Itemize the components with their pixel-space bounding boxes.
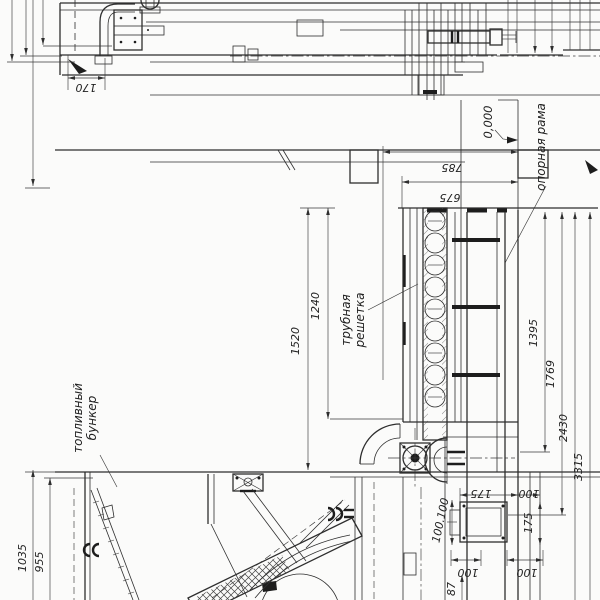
dim-text-2430: 2430 [557,414,570,442]
dim-text-1769: 1769 [544,360,557,388]
dim-text-175a: 175 [471,487,492,500]
dim-text-1395: 1395 [527,319,540,347]
dim-text-1240: 1240 [309,292,322,320]
svg-text:785: 785 [442,161,463,174]
svg-text:трубная: трубная [339,294,353,346]
dim-text-100a: 100 [519,487,540,500]
svg-text:опорная рама: опорная рама [534,103,548,191]
svg-text:топливный: топливный [71,383,85,453]
dim-text-3315: 3315 [572,453,585,481]
technical-drawing: 170 0,000 опорная рама 785 675 [0,0,600,600]
dim-text-1035: 1035 [16,544,29,572]
datum-text: 0,000 [481,106,495,139]
dim-text-87: 87 [445,582,458,596]
dim-text-100b: 100 [458,566,479,579]
dim-text-100c: 100 [517,566,538,579]
dim-text-1520: 1520 [289,327,302,355]
svg-text:бункер: бункер [85,395,99,440]
svg-text:решетка: решетка [353,293,367,349]
svg-text:675: 675 [440,191,461,204]
dim-text-175b: 175 [522,513,535,534]
dim-text-170: 170 [76,81,97,94]
dim-text-955: 955 [33,552,46,573]
